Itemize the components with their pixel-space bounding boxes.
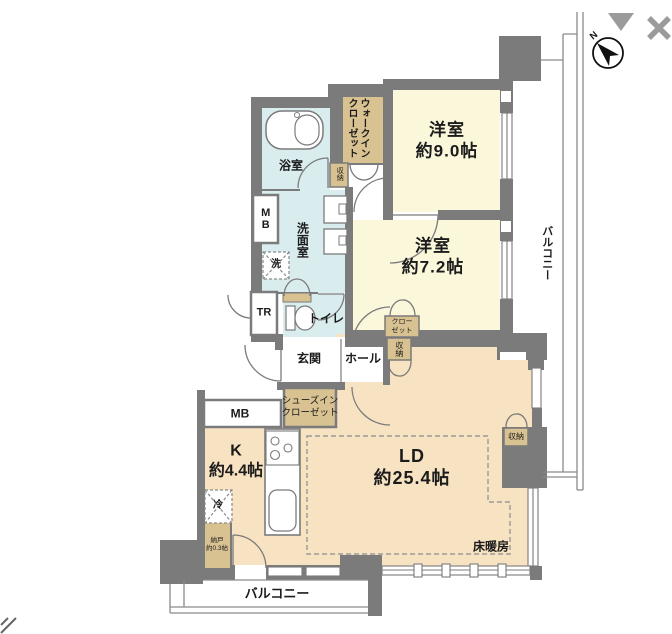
trunk-room-label: TR (257, 306, 272, 319)
corner-mark (1, 618, 16, 633)
storage-ld-top-label: 収納 (394, 341, 404, 357)
storage-wic-label: 収納 (335, 167, 344, 181)
meter-box-upper-label: MB (258, 207, 271, 231)
balcony-right-label: バルコニー (539, 226, 552, 281)
stove-icon (266, 431, 299, 465)
shoes-in-closet-label: シューズインクローゼット (281, 395, 338, 418)
entrance-label: 玄関 (297, 352, 321, 367)
toilet-label: トイレ (308, 312, 344, 327)
bathroom-label: 浴室 (279, 159, 303, 174)
floor-heating-label: 床暖房 (473, 540, 509, 555)
collapse-icon[interactable] (608, 13, 634, 31)
bedroom1-door (354, 178, 388, 212)
washroom-threshold (283, 293, 311, 302)
closet-label: クローゼット (392, 318, 413, 335)
sink-icon (269, 490, 296, 531)
living-dining-label: LD約25.4帖 (373, 446, 450, 490)
walk-in-closet-label: ウォークインクローゼット (345, 98, 369, 158)
close-icon[interactable] (649, 18, 669, 38)
washroom-label: 洗面室 (295, 222, 310, 258)
bedroom1-label: 洋室約9.0帖 (416, 120, 479, 161)
trunk-room-door (228, 295, 251, 318)
entrance-door (245, 345, 281, 381)
nando-label: 納戸約0.3帖 (206, 537, 228, 553)
balcony-bottom-label: バルコニー (245, 586, 310, 602)
wic-door (350, 164, 378, 180)
refrigerator-label: 冷 (213, 500, 223, 512)
bedroom2-label: 洋室約7.2帖 (402, 236, 465, 277)
meter-box-lower-label: MB (231, 407, 250, 422)
kitchen-label: K約4.4帖 (209, 441, 263, 480)
floor-plan: N 洋室約9.0帖 洋室約7.2帖 LD約25.4帖 K約4.4帖 浴室 洗面室… (0, 0, 672, 634)
compass-icon: N (588, 29, 623, 68)
storage-ld-right-label: 収納 (508, 432, 524, 442)
hall-label: ホール (345, 352, 381, 367)
toilet-tank-icon (286, 306, 295, 330)
laundry-label: 洗 (271, 259, 281, 271)
